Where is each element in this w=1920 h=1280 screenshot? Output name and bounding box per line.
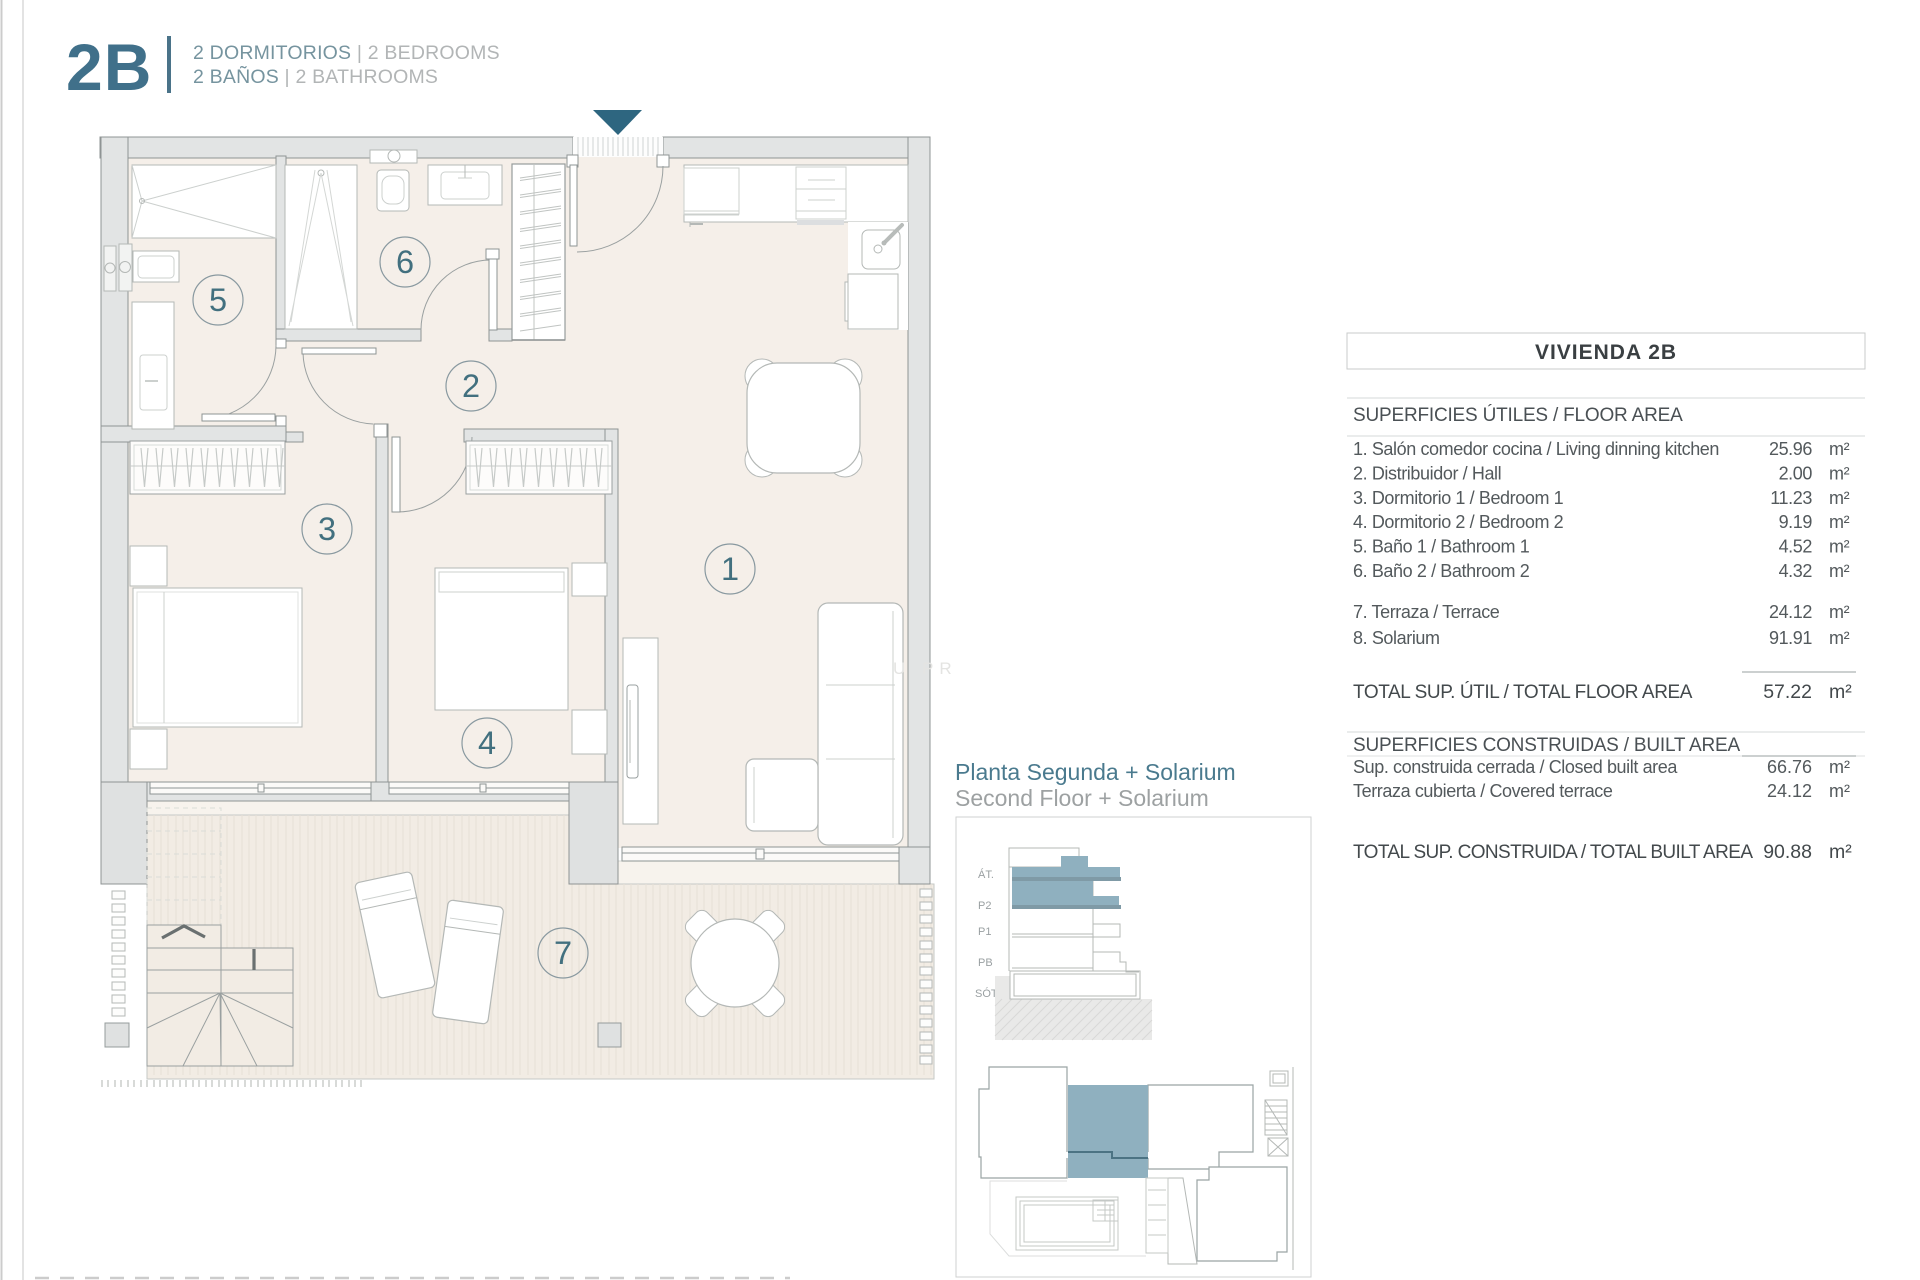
svg-text:2 BAÑOS | 2 BATHROOMS: 2 BAÑOS | 2 BATHROOMS <box>193 64 438 88</box>
svg-text:5: 5 <box>209 282 227 318</box>
svg-text:SUPERFICIES CONSTRUIDAS / BUIL: SUPERFICIES CONSTRUIDAS / BUILT AREA <box>1353 735 1740 756</box>
svg-text:Second Floor + Solarium: Second Floor + Solarium <box>955 785 1209 811</box>
svg-text:TOTAL SUP. CONSTRUIDA / TOTAL: TOTAL SUP. CONSTRUIDA / TOTAL BUILT AREA <box>1353 842 1753 863</box>
svg-text:2 DORMITORIOS | 2 BEDROOMS: 2 DORMITORIOS | 2 BEDROOMS <box>193 42 500 64</box>
svg-text:5. Baño 1 / Bathroom 1: 5. Baño 1 / Bathroom 1 <box>1353 537 1530 557</box>
svg-text:SUPERFICIES ÚTILES / FLOOR ARE: SUPERFICIES ÚTILES / FLOOR AREA <box>1353 404 1683 426</box>
svg-text:66.76: 66.76 <box>1767 757 1812 777</box>
svg-text:VIVIENDA 2B: VIVIENDA 2B <box>1535 341 1677 364</box>
svg-text:4.32: 4.32 <box>1779 561 1813 581</box>
svg-text:1: 1 <box>721 551 739 587</box>
svg-text:8. Solarium: 8. Solarium <box>1353 628 1440 648</box>
svg-text:4. Dormitorio 2 / Bedroom 2: 4. Dormitorio 2 / Bedroom 2 <box>1353 512 1564 532</box>
svg-text:PB: PB <box>978 957 993 969</box>
svg-text:24.12: 24.12 <box>1767 781 1812 801</box>
svg-text:11.23: 11.23 <box>1770 488 1812 508</box>
svg-text:6: 6 <box>396 244 414 280</box>
svg-text:7. Terraza / Terrace: 7. Terraza / Terrace <box>1353 602 1500 622</box>
svg-text:Terraza cubierta / Covered ter: Terraza cubierta / Covered terrace <box>1353 781 1613 801</box>
svg-text:2B: 2B <box>66 30 152 104</box>
svg-text:m²: m² <box>1829 602 1850 622</box>
svg-text:m²: m² <box>1829 512 1850 532</box>
svg-text:Sup. construida cerrada / Clos: Sup. construida cerrada / Closed built a… <box>1353 757 1678 777</box>
svg-text:2. Distribuidor / Hall: 2. Distribuidor / Hall <box>1353 463 1501 483</box>
svg-text:91.91: 91.91 <box>1769 628 1812 648</box>
svg-text:3: 3 <box>318 511 336 547</box>
svg-text:ÁT.: ÁT. <box>978 868 994 881</box>
svg-text:4: 4 <box>478 725 496 761</box>
svg-text:m²: m² <box>1829 781 1850 801</box>
svg-text:m²: m² <box>1829 463 1850 483</box>
svg-text:7: 7 <box>554 935 572 971</box>
svg-text:m²: m² <box>1829 628 1850 648</box>
svg-text:25.96: 25.96 <box>1769 439 1812 459</box>
svg-text:57.22: 57.22 <box>1763 681 1812 703</box>
svg-text:m²: m² <box>1829 488 1850 508</box>
svg-text:2.00: 2.00 <box>1779 463 1813 483</box>
svg-text:m²: m² <box>1829 561 1850 581</box>
svg-text:90.88: 90.88 <box>1763 841 1812 863</box>
svg-text:1. Salón comedor cocina / Livi: 1. Salón comedor cocina / Living dinning… <box>1353 439 1719 459</box>
svg-text:3. Dormitorio 1 / Bedroom 1: 3. Dormitorio 1 / Bedroom 1 <box>1353 488 1564 508</box>
svg-text:P1: P1 <box>978 926 991 938</box>
svg-text:U PR: U PR <box>893 659 958 678</box>
svg-text:2: 2 <box>462 368 480 404</box>
svg-text:m²: m² <box>1829 841 1852 863</box>
svg-text:6. Baño 2 / Bathroom 2: 6. Baño 2 / Bathroom 2 <box>1353 561 1530 581</box>
svg-text:m²: m² <box>1829 537 1850 557</box>
svg-text:P2: P2 <box>978 900 991 912</box>
svg-text:24.12: 24.12 <box>1769 602 1812 622</box>
svg-text:m²: m² <box>1829 681 1852 703</box>
svg-text:m²: m² <box>1829 757 1850 777</box>
svg-text:m²: m² <box>1829 439 1850 459</box>
svg-text:Planta Segunda + Solarium: Planta Segunda + Solarium <box>955 759 1236 785</box>
svg-text:4.52: 4.52 <box>1779 537 1813 557</box>
svg-text:TOTAL SUP. ÚTIL / TOTAL FLOOR: TOTAL SUP. ÚTIL / TOTAL FLOOR AREA <box>1353 681 1693 703</box>
svg-text:9.19: 9.19 <box>1779 512 1813 532</box>
